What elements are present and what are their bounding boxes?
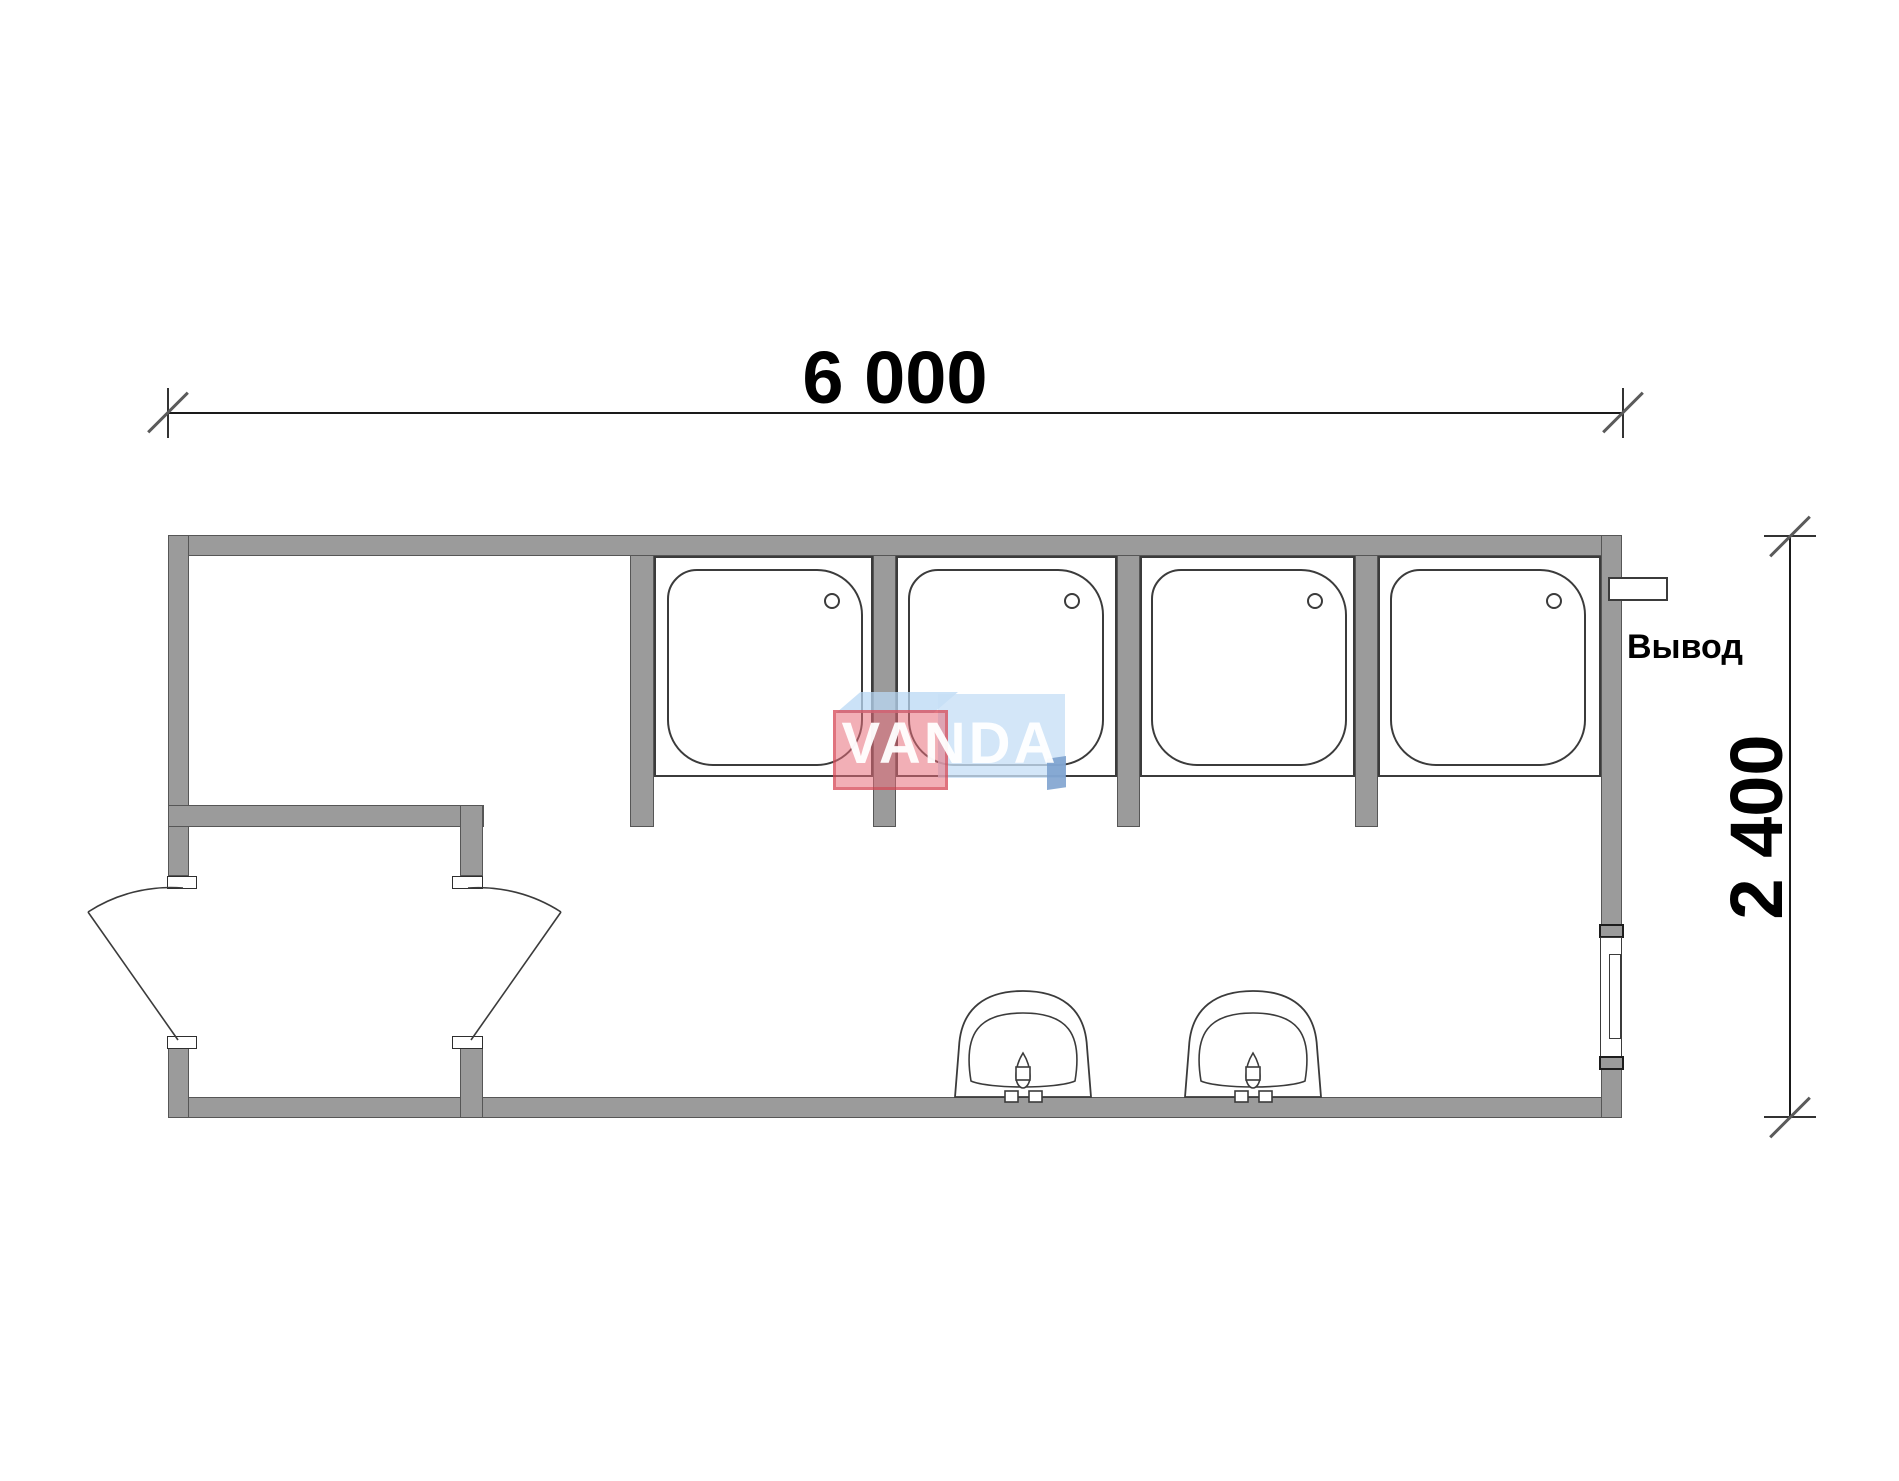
shower-drain-4 <box>1546 593 1562 609</box>
wall-bottom <box>168 1097 1622 1118</box>
dimension-height-label: 2 400 <box>1717 677 1797 977</box>
floor-plan: 6 000 2 400 Вывод <box>0 0 1899 1481</box>
outlet-label: Вывод <box>1627 627 1743 667</box>
vestibule-door-swing <box>70 870 590 1060</box>
shower-drain-3 <box>1307 593 1323 609</box>
window-jamb-bottom <box>1599 1056 1624 1070</box>
watermark-logo: VANDA <box>820 680 1080 800</box>
shower-drain-1 <box>824 593 840 609</box>
outlet-symbol <box>1608 577 1668 601</box>
window-jamb-top <box>1599 924 1624 938</box>
logo-text: VANDA <box>838 708 1062 780</box>
dimension-width-line <box>168 412 1623 414</box>
wall-vestibule-right-upper <box>460 805 483 876</box>
dimension-height-line <box>1789 535 1791 1118</box>
shower-drain-2 <box>1064 593 1080 609</box>
wall-right-lower <box>1601 1069 1622 1118</box>
partition-3 <box>1117 555 1140 827</box>
partition-1 <box>630 555 654 827</box>
dimension-width-label: 6 000 <box>745 341 1045 415</box>
partition-4 <box>1355 555 1378 827</box>
wash-basin-2 <box>1175 977 1335 1105</box>
wall-top <box>168 535 1622 556</box>
wash-basin-1 <box>945 977 1105 1105</box>
window-glazing <box>1609 954 1621 1039</box>
wall-vestibule-top <box>168 805 484 827</box>
